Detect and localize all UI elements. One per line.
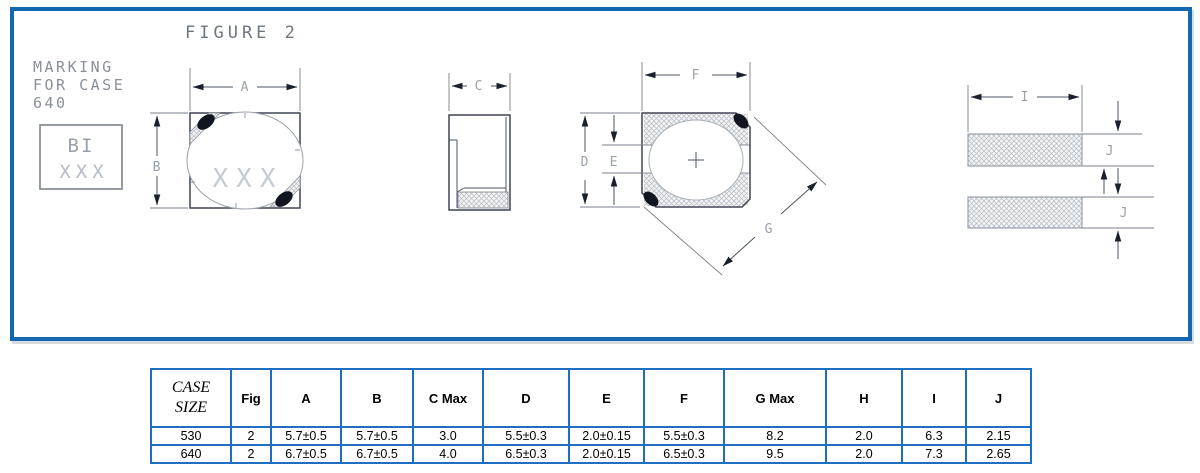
header-a: A [271,369,341,427]
land-pattern-view: I J J [968,85,1154,259]
marking-note: MARKING FOR CASE 640 [33,58,125,112]
figure-drawing-panel: FIGURE 2 MARKING FOR CASE 640 BI XXX XXX… [10,7,1192,341]
marking-note-line-1: MARKING [33,58,114,76]
dimension-f: F [642,62,750,111]
cell-d: 6.5±0.3 [483,445,569,463]
top-view-marking-text: XXX [213,164,284,194]
cell-j: 2.65 [966,445,1031,463]
marking-note-line-3: 640 [33,94,68,112]
dimension-b: B [150,113,188,208]
cell-b: 6.7±0.5 [341,445,413,463]
dimension-i: I [968,85,1082,132]
dim-f-label: F [692,68,701,83]
cell-g-max: 9.5 [724,445,826,463]
cell-g-max: 8.2 [724,427,826,445]
dim-g-label: G [765,222,774,237]
dimension-c: C [449,73,510,111]
table-header-row: CASE SIZE Fig A B C Max D E F G Max H I … [151,369,1031,427]
cell-h: 2.0 [826,445,902,463]
marking-box-line-2: XXX [59,161,108,183]
header-h: H [826,369,902,427]
cell-a: 6.7±0.5 [271,445,341,463]
header-case-size: CASE SIZE [151,369,231,427]
top-view: XXX A B [150,68,303,210]
header-b: B [341,369,413,427]
cell-e: 2.0±0.15 [569,445,644,463]
table-row-640: 640 2 6.7±0.5 6.7±0.5 4.0 6.5±0.3 2.0±0.… [151,445,1031,463]
cell-d: 5.5±0.3 [483,427,569,445]
dimension-e: E [602,115,644,205]
case-dimension-table: CASE SIZE Fig A B C Max D E F G Max H I … [150,368,1032,464]
cell-fig: 2 [231,427,271,445]
cell-case-size: 640 [151,445,231,463]
dimension-a: A [190,68,300,111]
cell-a: 5.7±0.5 [271,427,341,445]
dim-e-label: E [610,155,619,170]
cell-f: 6.5±0.3 [644,445,724,463]
cell-c-max: 4.0 [413,445,483,463]
marking-box: BI XXX [40,125,122,189]
cell-j: 2.15 [966,427,1031,445]
dim-i-label: I [1021,90,1030,105]
header-e: E [569,369,644,427]
land-pad-top [968,134,1082,166]
bottom-view: F D E G [580,62,826,275]
dim-c-label: C [475,79,484,94]
figure-title: FIGURE 2 [185,23,299,43]
cell-i: 6.3 [902,427,966,445]
cell-c-max: 3.0 [413,427,483,445]
cell-e: 2.0±0.15 [569,427,644,445]
land-pad-bottom [968,197,1082,228]
header-g-max: G Max [724,369,826,427]
cell-fig: 2 [231,445,271,463]
header-fig: Fig [231,369,271,427]
header-f: F [644,369,724,427]
dim-a-label: A [241,80,250,95]
cell-f: 5.5±0.3 [644,427,724,445]
cell-h: 2.0 [826,427,902,445]
header-i: I [902,369,966,427]
dim-b-label: B [153,160,162,175]
cell-i: 7.3 [902,445,966,463]
header-d: D [483,369,569,427]
technical-drawing: FIGURE 2 MARKING FOR CASE 640 BI XXX XXX… [14,11,1188,337]
marking-note-line-2: FOR CASE [33,76,125,94]
dim-j-top-label: J [1106,144,1115,159]
side-view: C [449,73,510,210]
dim-d-label: D [581,155,590,170]
table-row-530: 530 2 5.7±0.5 5.7±0.5 3.0 5.5±0.3 2.0±0.… [151,427,1031,445]
cell-b: 5.7±0.5 [341,427,413,445]
side-view-terminal [458,192,508,208]
cell-case-size: 530 [151,427,231,445]
dim-j-bottom-label: J [1120,206,1129,221]
marking-box-line-1: BI [68,135,95,157]
datasheet-page: { "colors": { "panel_border_blue": "#126… [0,0,1200,473]
header-j: J [966,369,1031,427]
header-c-max: C Max [413,369,483,427]
dimension-j-bottom: J [1082,168,1154,259]
